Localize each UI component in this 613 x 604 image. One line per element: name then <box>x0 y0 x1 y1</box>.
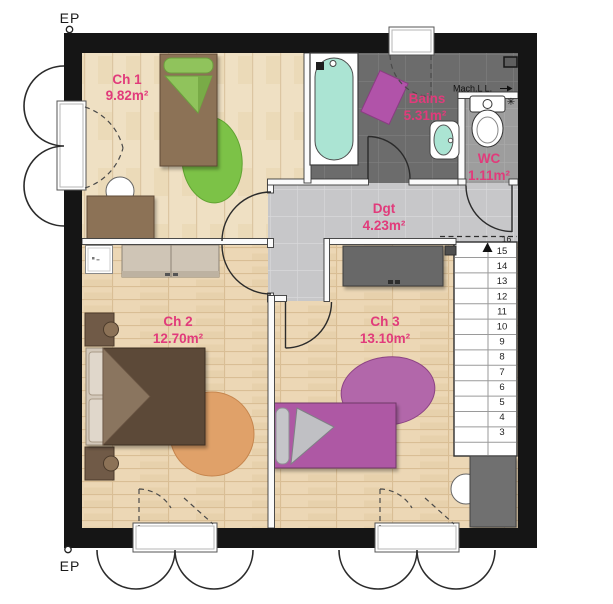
toilet <box>470 96 505 147</box>
label-ch3-area: 13.10m² <box>360 331 411 346</box>
stair-step-label: 5 <box>499 397 504 408</box>
stair-step-label: 9 <box>499 337 504 348</box>
label-wc-area: 1.11m² <box>468 168 511 183</box>
staircase <box>454 242 517 456</box>
ch1-bed <box>160 54 217 166</box>
stair-step-label: 6 <box>499 382 504 393</box>
wall-wc-bottom-left <box>458 179 466 185</box>
stair-step-label: 14 <box>497 261 508 272</box>
sink <box>430 121 459 159</box>
label-ep-top: EP <box>60 10 81 26</box>
wall-wc-bottom-right <box>509 179 518 185</box>
label-washing-machine: Mach.L L. <box>453 84 492 94</box>
label-ch1-name: Ch 1 <box>112 72 142 87</box>
stair-step-label: 7 <box>499 367 504 378</box>
label-bains-name: Bains <box>409 91 446 106</box>
outer-wall-right <box>518 33 537 548</box>
label-ep-bottom: EP <box>60 558 81 574</box>
floor-plan-drawing: ✳ Ch 1 9.82m² Ch 2 12.70m² Ch 3 13.10m² … <box>0 0 613 604</box>
window-ch2-bottom <box>133 523 217 552</box>
stair-step-label: 8 <box>499 352 504 363</box>
wall-ch1-ch2 <box>82 239 272 245</box>
window-bains-top <box>389 27 434 55</box>
ch3-desk <box>470 456 516 527</box>
shutters-ch3-window <box>339 550 495 589</box>
bathtub-faucet-icon <box>316 62 324 70</box>
ch2-bed <box>86 348 205 445</box>
wall-ch2-ch3 <box>268 296 275 529</box>
stair-step-label: 4 <box>499 412 504 423</box>
label-ch2-name: Ch 2 <box>163 314 192 329</box>
label-ch2-area: 12.70m² <box>153 331 204 346</box>
wardrobe-handle-right <box>395 280 400 284</box>
label-stair-16: 16 <box>502 234 512 244</box>
wall-bains-dgt-right <box>409 179 460 185</box>
outer-wall-top <box>64 33 537 53</box>
ch3-corner-fixture <box>445 246 456 255</box>
stair-box <box>454 242 517 456</box>
ch3-bed <box>272 403 396 468</box>
stair-step-label: 15 <box>497 246 508 257</box>
washing-machine-slot <box>504 57 517 67</box>
label-wc-name: WC <box>478 151 501 166</box>
label-bains-area: 5.31m² <box>404 108 447 123</box>
ch2-nightstand-top <box>85 313 119 346</box>
stair-step-label: 12 <box>497 291 508 302</box>
wardrobe-handle-left <box>388 280 393 284</box>
stair-step-label: 10 <box>497 322 508 333</box>
window-ch3-bottom <box>375 523 459 552</box>
ep-marker-top-icon <box>66 26 72 32</box>
stair-step-label: 3 <box>499 427 504 438</box>
ch2-storage-unit <box>86 245 220 277</box>
wall-bains-dgt-left <box>268 179 369 185</box>
floor-plan: ✳ Ch 1 9.82m² Ch 2 12.70m² Ch 3 13.10m² … <box>0 0 613 604</box>
vent-asterisk-icon: ✳ <box>507 97 515 108</box>
stair-step-label: 11 <box>497 306 507 317</box>
ep-marker-bottom-icon <box>65 546 71 552</box>
bathtub <box>310 53 358 165</box>
label-ch1-area: 9.82m² <box>106 88 149 103</box>
wall-dgt-strip-right <box>324 239 330 302</box>
ch1-desk <box>87 196 154 240</box>
shutters-left-window <box>24 66 64 226</box>
bathtub-drain-icon <box>330 61 336 67</box>
wall-dgt-ch3 <box>324 239 456 245</box>
stair-step-label: 13 <box>497 276 508 287</box>
label-ch3-name: Ch 3 <box>370 314 400 329</box>
wall-stub-dgt-mid <box>268 239 274 248</box>
label-dgt-name: Dgt <box>373 201 396 216</box>
label-dgt-area: 4.23m² <box>363 218 406 233</box>
ch2-nightstand-bottom <box>85 447 119 480</box>
shutters-ch2-window <box>97 550 253 589</box>
